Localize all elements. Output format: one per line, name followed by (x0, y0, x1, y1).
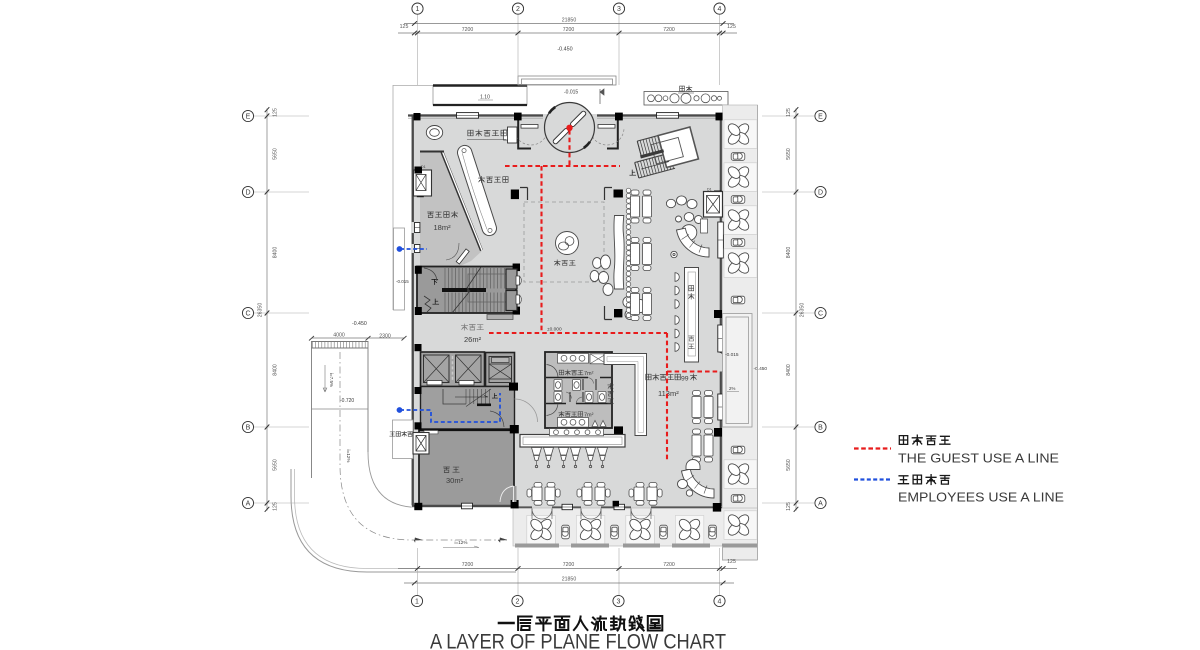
svg-text:125: 125 (727, 24, 736, 30)
svg-text:7200: 7200 (563, 27, 575, 33)
svg-text:7200: 7200 (663, 562, 675, 568)
svg-text:26350: 26350 (800, 303, 806, 318)
svg-text:±0.000: ±0.000 (547, 327, 562, 333)
svg-text:C: C (818, 311, 823, 318)
svg-text:A: A (246, 501, 251, 508)
svg-text:THE GUEST USE A LINE: THE GUEST USE A LINE (898, 451, 1059, 466)
svg-text:2: 2 (516, 599, 520, 606)
svg-text:3: 3 (617, 599, 621, 606)
svg-text:7200: 7200 (663, 27, 675, 33)
svg-text:B: B (818, 425, 823, 432)
svg-text:5650: 5650 (273, 459, 279, 471)
svg-text:D: D (245, 190, 250, 197)
svg-text:7m²: 7m² (584, 371, 594, 377)
svg-text:A: A (818, 501, 823, 508)
svg-text:125: 125 (727, 559, 736, 565)
svg-text:E: E (246, 114, 251, 121)
svg-text:8400: 8400 (273, 247, 279, 259)
svg-text:21850: 21850 (562, 18, 577, 24)
svg-text:i=7.5%: i=7.5% (329, 373, 334, 387)
svg-text:7200: 7200 (563, 562, 575, 568)
svg-text:-0.450: -0.450 (557, 47, 572, 53)
svg-text:2: 2 (516, 6, 520, 13)
svg-text:7200: 7200 (462, 27, 474, 33)
svg-text:D1: D1 (707, 188, 712, 192)
svg-text:8400: 8400 (786, 247, 792, 259)
svg-text:A LAYER OF PLANE FLOW CHART: A LAYER OF PLANE FLOW CHART (430, 630, 726, 650)
svg-text:5650: 5650 (786, 459, 792, 471)
svg-text:-0.015: -0.015 (564, 90, 578, 96)
svg-text:-0.015: -0.015 (396, 279, 409, 284)
svg-text:3: 3 (617, 6, 621, 13)
svg-text:18m²: 18m² (434, 223, 452, 232)
svg-text:E: E (818, 114, 823, 121)
svg-text:7200: 7200 (462, 562, 474, 568)
svg-text:8400: 8400 (273, 364, 279, 376)
svg-text:5650: 5650 (786, 148, 792, 160)
svg-text:2300: 2300 (379, 334, 391, 340)
svg-text:4: 4 (718, 6, 722, 13)
svg-text:5650: 5650 (273, 148, 279, 160)
svg-text:125: 125 (273, 502, 279, 511)
svg-text:4000: 4000 (333, 333, 345, 339)
svg-text:125: 125 (786, 108, 792, 117)
svg-text:D1: D1 (421, 165, 426, 169)
svg-text:125: 125 (400, 24, 409, 30)
svg-text:-0.450: -0.450 (754, 366, 768, 372)
svg-text:30m²: 30m² (446, 476, 464, 485)
svg-text:D: D (818, 190, 823, 197)
svg-text:21850: 21850 (562, 577, 577, 583)
svg-text:113m²: 113m² (658, 389, 679, 398)
svg-text:i=12%: i=12% (346, 450, 351, 463)
svg-text:1.10: 1.10 (480, 95, 490, 101)
svg-text:26350: 26350 (258, 303, 264, 318)
svg-text:2%: 2% (729, 386, 735, 391)
svg-text:C: C (245, 311, 250, 318)
svg-text:125: 125 (273, 108, 279, 117)
svg-text:8400: 8400 (786, 364, 792, 376)
svg-text:EMPLOYEES USE A LINE: EMPLOYEES USE A LINE (898, 490, 1064, 505)
svg-text:i=12%: i=12% (455, 540, 468, 545)
svg-text:26m²: 26m² (464, 335, 482, 344)
svg-text:4: 4 (718, 599, 722, 606)
svg-text:-0.720: -0.720 (340, 398, 354, 404)
svg-text:B: B (246, 425, 251, 432)
svg-text:1: 1 (415, 599, 419, 606)
svg-text:1: 1 (416, 6, 420, 13)
svg-text:99: 99 (681, 376, 689, 383)
svg-text:125: 125 (786, 502, 792, 511)
svg-text:-0.015: -0.015 (725, 352, 739, 358)
svg-text:-0.450: -0.450 (352, 321, 367, 327)
